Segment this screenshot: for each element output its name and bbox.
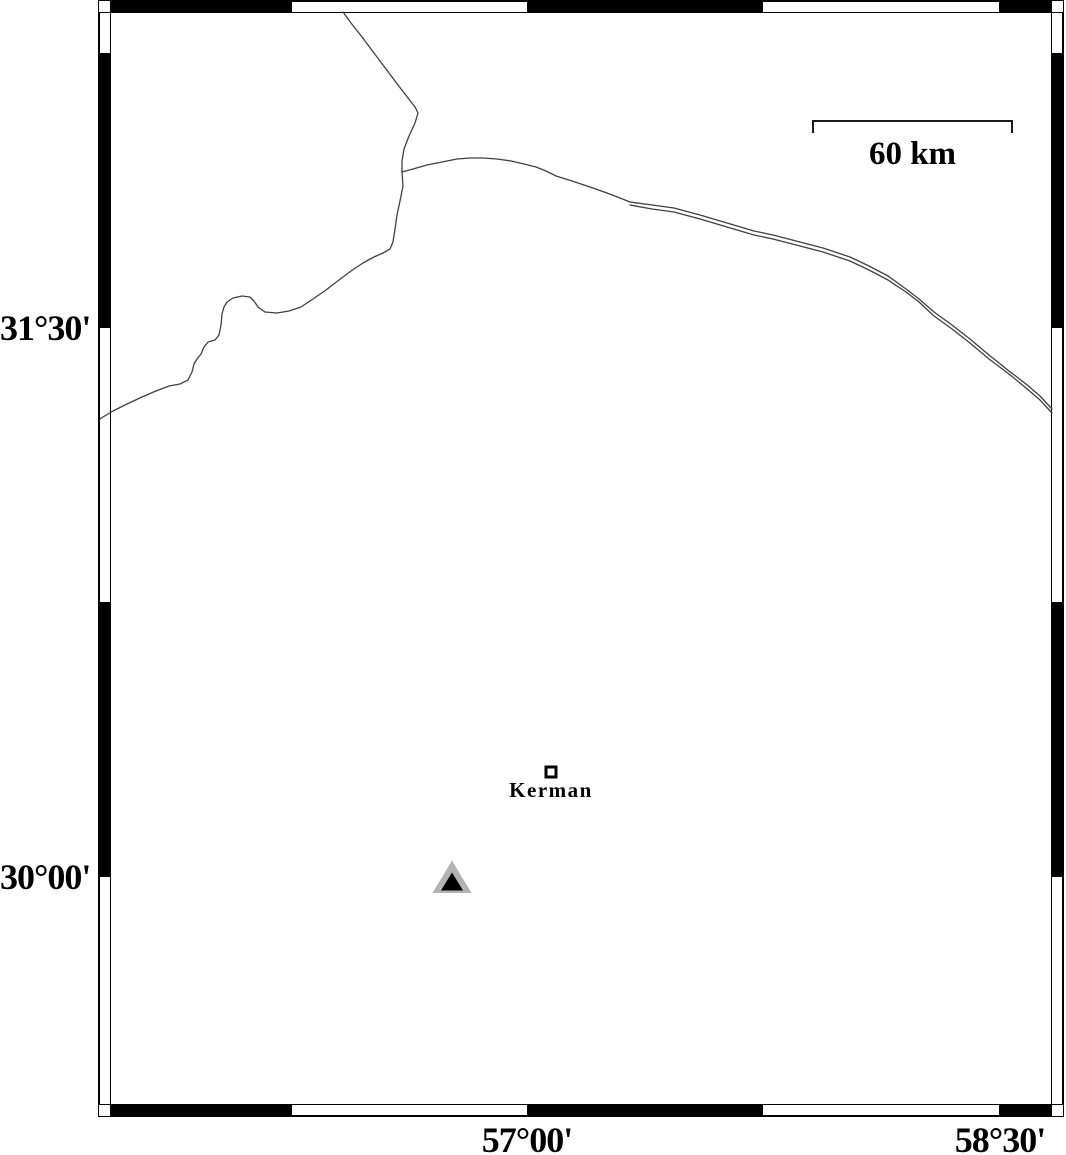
boundary-line	[630, 202, 1052, 409]
longitude-label-1: 58°30'	[920, 1119, 1066, 1155]
map-canvas: 31°30' 30°00' 57°00' 58°30' 60 km Kerman	[0, 0, 1066, 1155]
station-triangle-icon	[433, 861, 472, 894]
city-label: Kerman	[471, 778, 631, 803]
boundary-line	[100, 172, 403, 419]
scale-bar-label: 60 km	[823, 136, 1003, 173]
boundary-line	[630, 205, 1052, 413]
latitude-label-0: 31°30'	[0, 307, 90, 349]
latitude-label-1: 30°00'	[0, 856, 90, 898]
longitude-label-0: 57°00'	[447, 1119, 607, 1155]
city-square-icon	[546, 767, 556, 777]
map-content-layer	[0, 0, 1066, 1155]
boundary-line	[402, 158, 630, 202]
boundary-line	[343, 12, 418, 172]
scale-bar-bracket-icon	[813, 121, 1012, 133]
boundary-lines	[100, 12, 1052, 419]
